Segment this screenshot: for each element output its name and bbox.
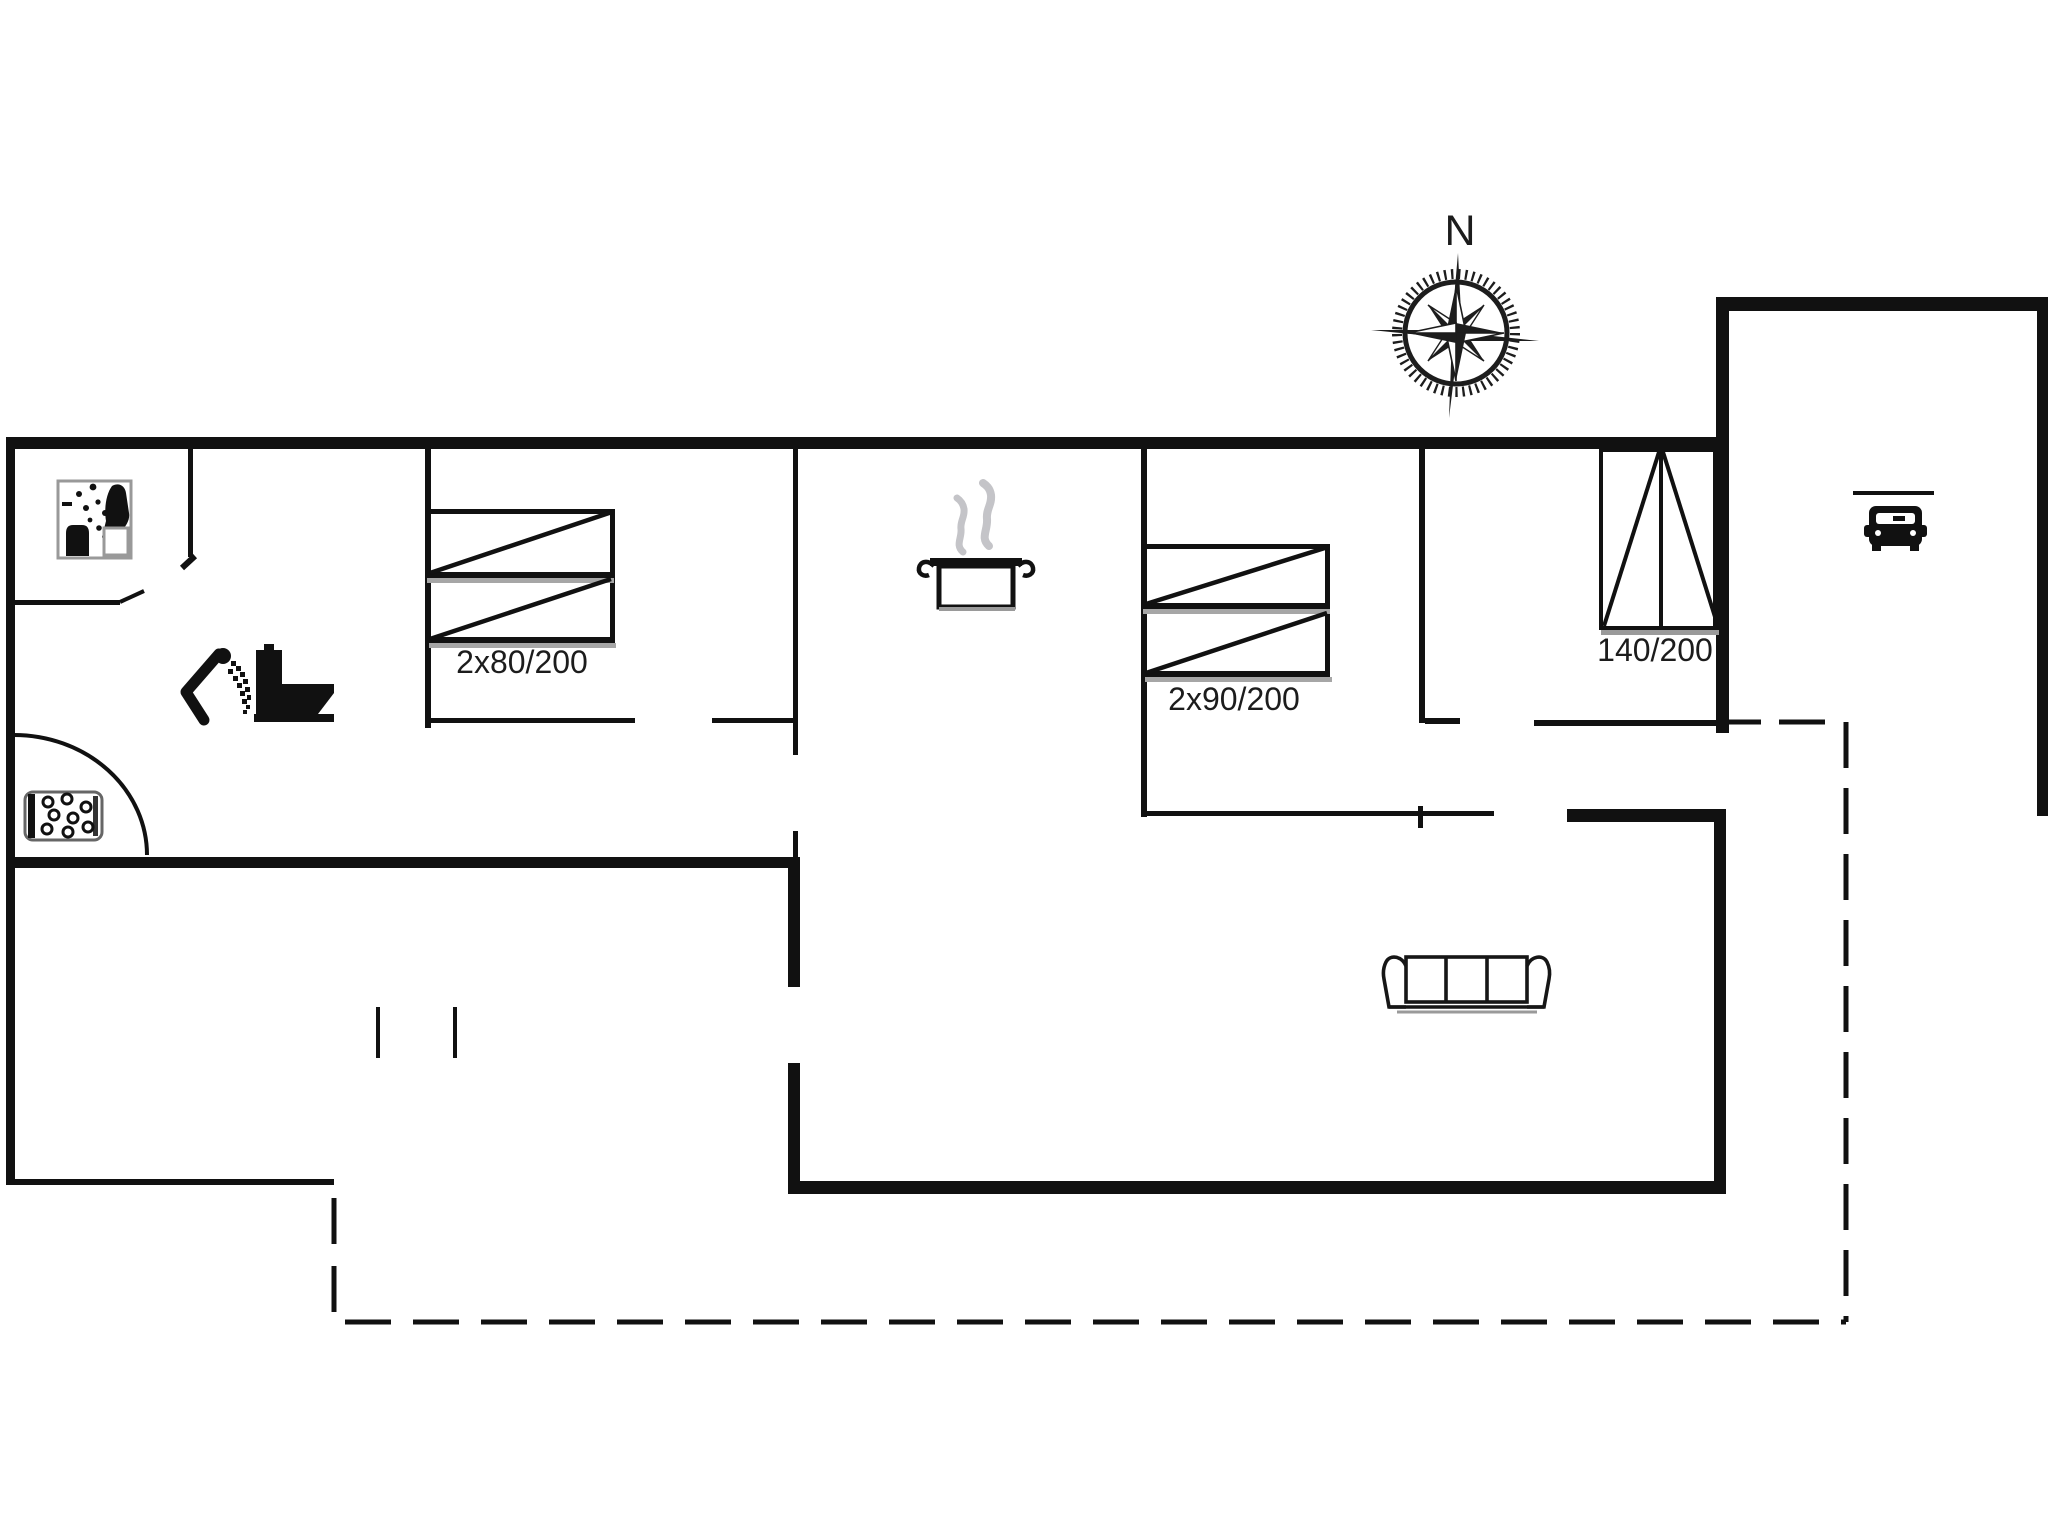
svg-text:2x90/200: 2x90/200 bbox=[1168, 681, 1300, 717]
svg-text:2x80/200: 2x80/200 bbox=[456, 644, 588, 680]
svg-text:140/200: 140/200 bbox=[1597, 632, 1713, 668]
svg-text:N: N bbox=[1444, 207, 1475, 255]
